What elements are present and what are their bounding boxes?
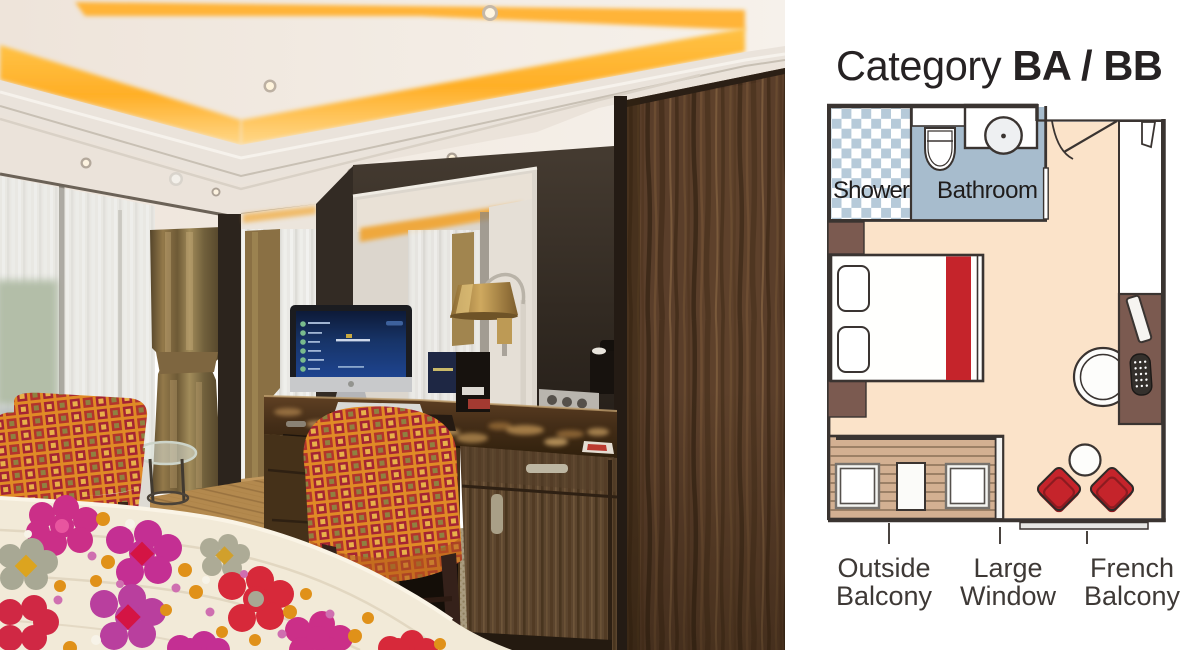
svg-text:Large: Large [973,553,1042,583]
svg-text:Shower: Shower [833,177,910,204]
svg-text:Outside: Outside [837,553,930,583]
svg-text:Window: Window [960,581,1057,611]
svg-text:Category BA / BB: Category BA / BB [836,42,1162,89]
svg-text:Balcony: Balcony [1084,581,1181,611]
svg-text:Balcony: Balcony [836,581,933,611]
svg-text:Bathroom: Bathroom [937,177,1038,204]
svg-text:French: French [1090,553,1174,583]
